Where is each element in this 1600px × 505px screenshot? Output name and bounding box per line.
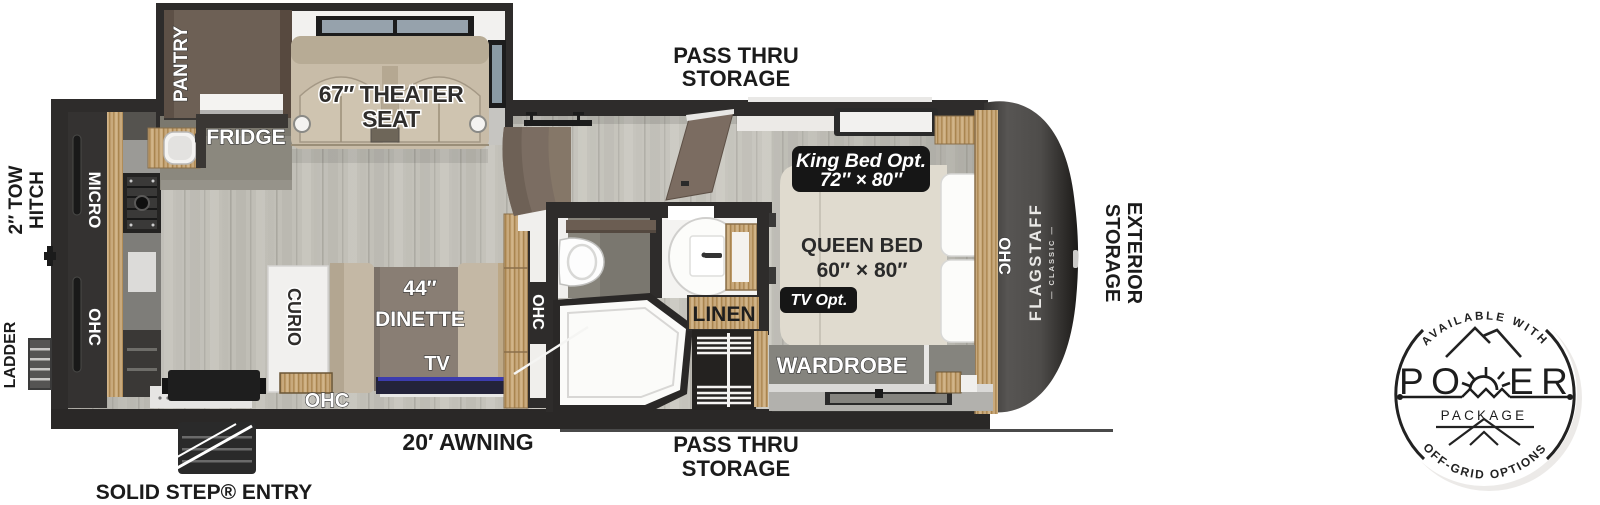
svg-text:MICRO: MICRO [85,172,104,229]
svg-text:QUEEN BED: QUEEN BED [801,234,923,257]
svg-text:20′ AWNING: 20′ AWNING [402,429,533,455]
svg-text:WARDROBE: WARDROBE [777,353,908,378]
svg-text:SOLID STEP® ENTRY: SOLID STEP® ENTRY [96,481,313,504]
svg-text:PACKAGE: PACKAGE [1441,408,1528,423]
svg-text:STORAGE: STORAGE [1101,204,1123,303]
svg-text:King Bed Opt.: King Bed Opt. [796,150,926,172]
svg-text:CURIO: CURIO [284,288,304,346]
svg-text:67″ THEATER: 67″ THEATER [319,81,464,107]
svg-text:FRIDGE: FRIDGE [206,126,285,149]
svg-text:STORAGE: STORAGE [682,456,790,481]
svg-text:TV: TV [424,353,450,375]
svg-text:PANTRY: PANTRY [171,26,192,102]
svg-text:HITCH: HITCH [27,171,48,229]
svg-text:OHC: OHC [529,294,546,330]
svg-text:DINETTE: DINETTE [375,308,465,331]
svg-text:SEAT: SEAT [362,106,420,132]
svg-text:OHC: OHC [995,237,1014,275]
svg-text:PASS THRU: PASS THRU [673,43,799,68]
svg-text:PASS THRU: PASS THRU [673,432,799,457]
svg-text:OHC: OHC [85,308,104,346]
svg-text:OHC: OHC [305,390,349,412]
svg-text:2″ TOW: 2″ TOW [6,165,27,234]
svg-text:60″ × 80″: 60″ × 80″ [817,259,908,282]
svg-text:EXTERIOR: EXTERIOR [1123,202,1145,305]
svg-text:LINEN: LINEN [693,303,756,326]
svg-text:LADDER: LADDER [2,321,19,388]
svg-text:TV Opt.: TV Opt. [791,292,848,309]
svg-text:44″: 44″ [403,277,436,300]
svg-text:STORAGE: STORAGE [682,66,790,91]
svg-text:FLAGSTAFF: FLAGSTAFF [1027,203,1045,321]
svg-text:72″ × 80″: 72″ × 80″ [820,170,903,191]
svg-text:— CLASSIC —: — CLASSIC — [1047,225,1056,299]
